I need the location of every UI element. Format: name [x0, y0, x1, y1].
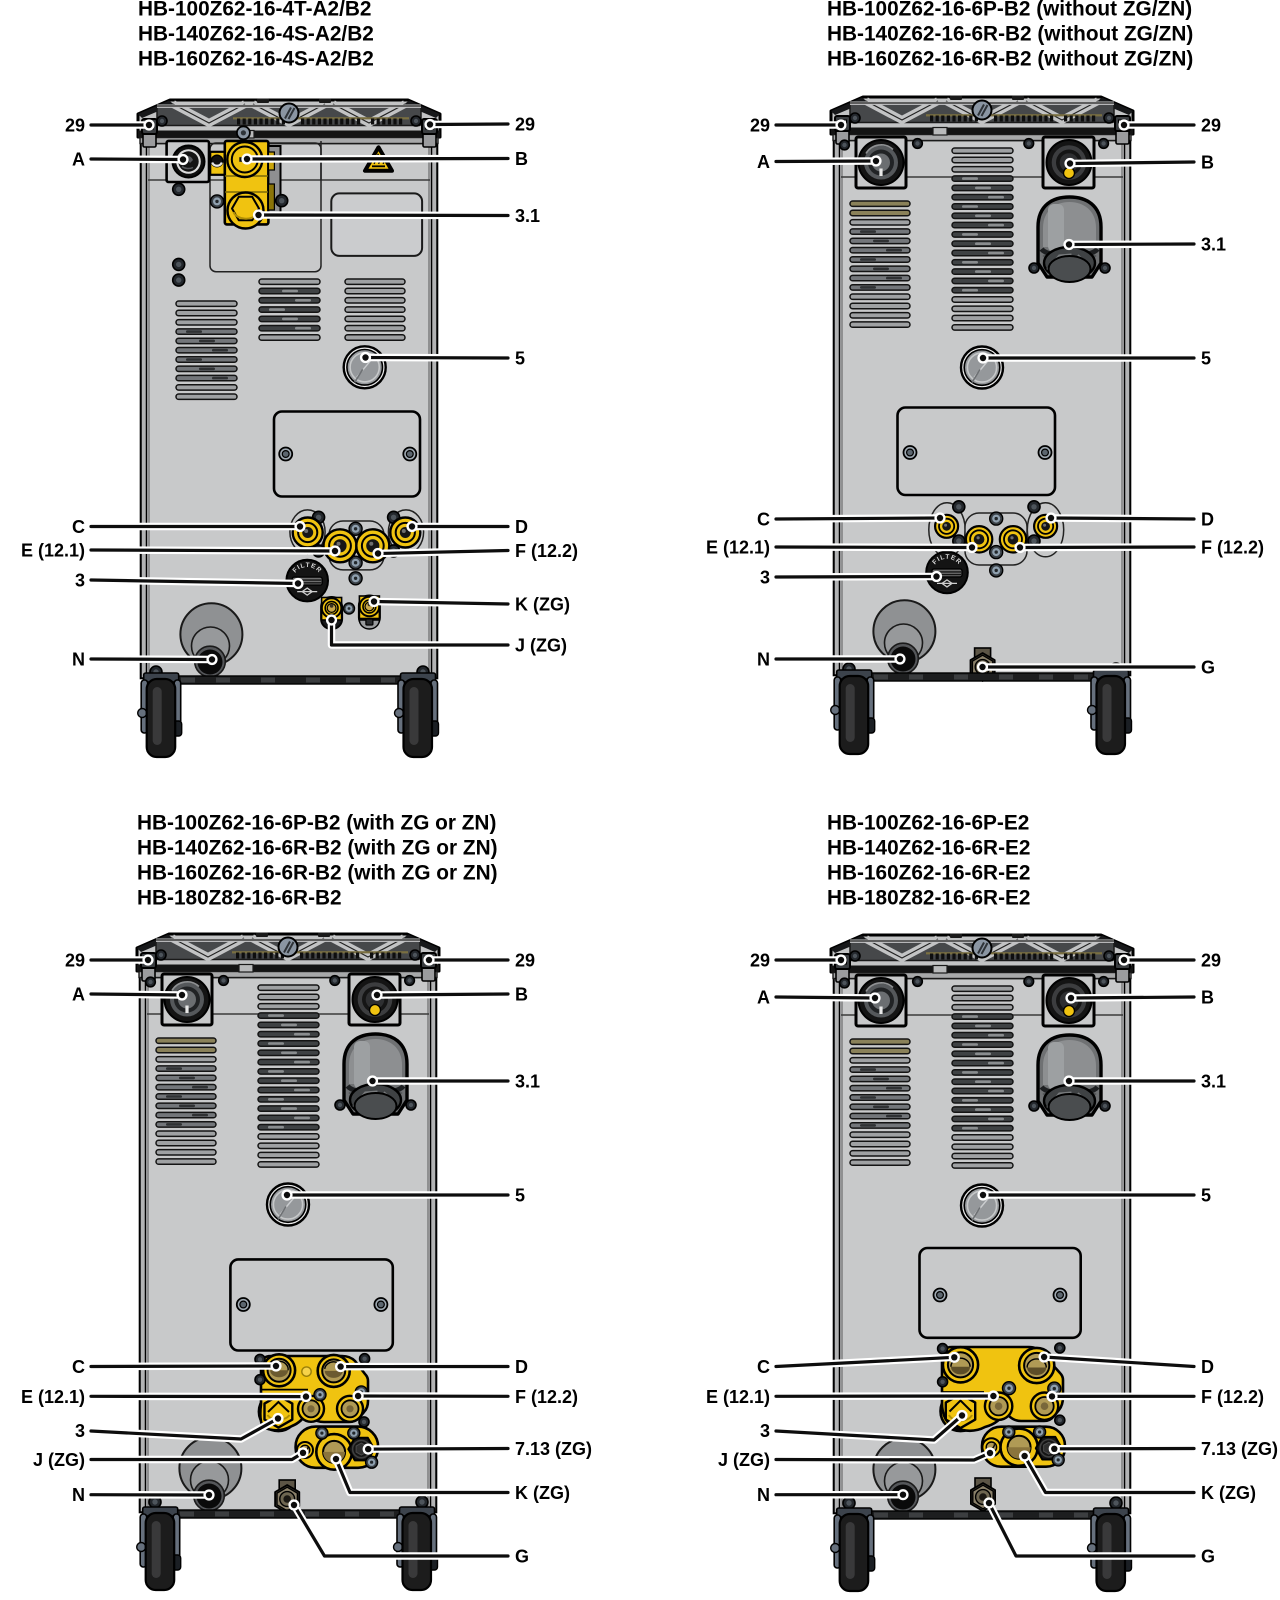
svg-text:D: D: [1201, 1357, 1214, 1377]
svg-text:HB-160Z62-16-4S-A2/B2: HB-160Z62-16-4S-A2/B2: [138, 48, 374, 71]
svg-text:3.1: 3.1: [515, 206, 540, 226]
svg-text:N: N: [757, 650, 770, 670]
svg-text:A: A: [757, 988, 770, 1008]
svg-text:A: A: [757, 152, 770, 172]
svg-text:G: G: [1201, 1547, 1215, 1567]
svg-text:G: G: [515, 1547, 529, 1567]
svg-text:E (12.1): E (12.1): [21, 1387, 85, 1407]
svg-text:E (12.1): E (12.1): [706, 1387, 770, 1407]
svg-text:B: B: [515, 985, 528, 1005]
svg-text:K (ZG): K (ZG): [515, 1483, 570, 1503]
svg-text:3.1: 3.1: [515, 1072, 540, 1092]
svg-text:29: 29: [750, 116, 770, 136]
svg-text:N: N: [757, 1485, 770, 1505]
svg-text:N: N: [72, 650, 85, 670]
svg-text:29: 29: [515, 951, 535, 971]
svg-text:K (ZG): K (ZG): [515, 595, 570, 615]
svg-text:D: D: [515, 517, 528, 537]
svg-text:F (12.2): F (12.2): [515, 541, 578, 561]
svg-text:3: 3: [760, 1421, 770, 1441]
svg-text:HB-160Z62-16-6R-B2 (with ZG or: HB-160Z62-16-6R-B2 (with ZG or ZN): [137, 861, 498, 884]
svg-text:D: D: [515, 1357, 528, 1377]
svg-text:HB-100Z62-16-6P-B2 (with ZG or: HB-100Z62-16-6P-B2 (with ZG or ZN): [137, 811, 496, 834]
svg-text:C: C: [757, 1357, 770, 1377]
svg-text:3: 3: [75, 571, 85, 591]
svg-text:A: A: [72, 985, 85, 1005]
svg-text:29: 29: [515, 115, 535, 135]
svg-text:A: A: [72, 150, 85, 170]
svg-text:29: 29: [750, 951, 770, 971]
svg-text:HB-100Z62-16-4T-A2/B2: HB-100Z62-16-4T-A2/B2: [138, 0, 371, 21]
svg-text:HB-140Z62-16-6R-B2 (with ZG or: HB-140Z62-16-6R-B2 (with ZG or ZN): [137, 836, 498, 859]
svg-text:HB-160Z62-16-6R-B2 (without ZG: HB-160Z62-16-6R-B2 (without ZG/ZN): [827, 48, 1193, 71]
svg-text:3: 3: [760, 568, 770, 588]
svg-text:HB-160Z62-16-6R-E2: HB-160Z62-16-6R-E2: [827, 861, 1030, 884]
svg-text:HB-140Z62-16-6R-B2 (without ZG: HB-140Z62-16-6R-B2 (without ZG/ZN): [827, 23, 1193, 46]
svg-text:HB-140Z62-16-4S-A2/B2: HB-140Z62-16-4S-A2/B2: [138, 23, 374, 46]
svg-text:J (ZG): J (ZG): [515, 636, 567, 656]
svg-text:E (12.1): E (12.1): [706, 538, 770, 558]
svg-text:HB-180Z82-16-6R-E2: HB-180Z82-16-6R-E2: [827, 886, 1030, 909]
svg-text:29: 29: [65, 116, 85, 136]
svg-text:E (12.1): E (12.1): [21, 541, 85, 561]
svg-text:C: C: [72, 517, 85, 537]
svg-text:5: 5: [515, 1186, 525, 1206]
svg-text:5: 5: [1201, 1186, 1211, 1206]
svg-text:HB-100Z62-16-6P-E2: HB-100Z62-16-6P-E2: [827, 811, 1029, 834]
svg-text:C: C: [72, 1357, 85, 1377]
svg-text:B: B: [1201, 988, 1214, 1008]
svg-text:3: 3: [75, 1421, 85, 1441]
svg-text:F (12.2): F (12.2): [1201, 1387, 1264, 1407]
svg-text:G: G: [1201, 658, 1215, 678]
svg-text:HB-180Z82-16-6R-B2: HB-180Z82-16-6R-B2: [137, 886, 342, 909]
svg-text:K (ZG): K (ZG): [1201, 1483, 1256, 1503]
svg-text:29: 29: [65, 951, 85, 971]
svg-text:29: 29: [1201, 116, 1221, 136]
svg-text:F (12.2): F (12.2): [1201, 538, 1264, 558]
svg-text:7.13 (ZG): 7.13 (ZG): [1201, 1439, 1278, 1459]
svg-text:J (ZG): J (ZG): [33, 1450, 85, 1470]
svg-text:HB-100Z62-16-6P-B2 (without ZG: HB-100Z62-16-6P-B2 (without ZG/ZN): [827, 0, 1192, 21]
svg-text:D: D: [1201, 510, 1214, 530]
svg-text:29: 29: [1201, 951, 1221, 971]
svg-text:J (ZG): J (ZG): [718, 1450, 770, 1470]
svg-text:7.13 (ZG): 7.13 (ZG): [515, 1439, 592, 1459]
svg-text:3.1: 3.1: [1201, 1072, 1226, 1092]
svg-text:B: B: [1201, 153, 1214, 173]
svg-text:N: N: [72, 1485, 85, 1505]
svg-text:5: 5: [515, 349, 525, 369]
svg-text:C: C: [757, 510, 770, 530]
svg-text:F (12.2): F (12.2): [515, 1387, 578, 1407]
svg-text:3.1: 3.1: [1201, 235, 1226, 255]
svg-text:HB-140Z62-16-6R-E2: HB-140Z62-16-6R-E2: [827, 836, 1030, 859]
svg-text:B: B: [515, 149, 528, 169]
svg-text:5: 5: [1201, 349, 1211, 369]
